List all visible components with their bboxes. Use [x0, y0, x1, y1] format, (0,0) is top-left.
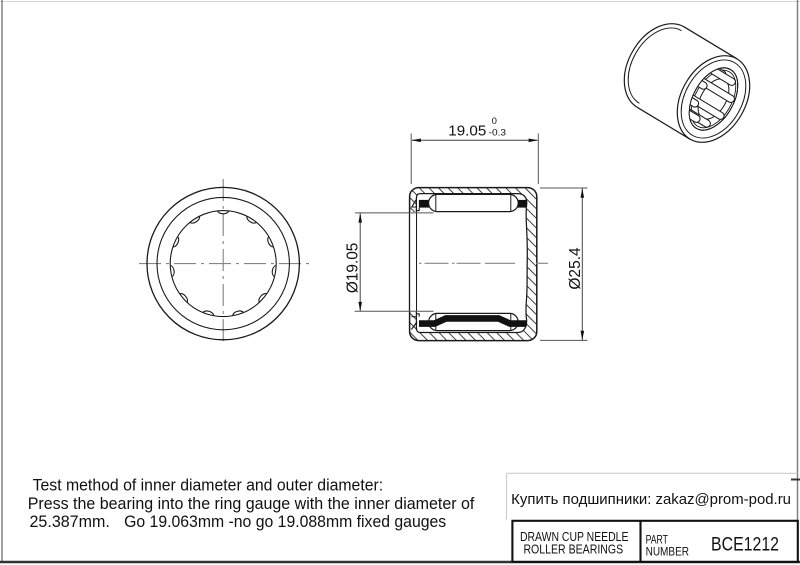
- svg-text:Go 19.063mm -no go 19.088mm fi: Go 19.063mm -no go 19.088mm fixed gauges: [124, 513, 446, 531]
- svg-text:ROLLER BEARINGS: ROLLER BEARINGS: [523, 541, 623, 556]
- svg-text:0: 0: [492, 116, 497, 127]
- svg-text:19.05: 19.05: [448, 124, 486, 140]
- svg-text:Test method of inner diameter: Test method of inner diameter and outer …: [33, 476, 384, 494]
- svg-text:25.387mm.: 25.387mm.: [30, 513, 110, 531]
- svg-text:NUMBER: NUMBER: [646, 546, 689, 558]
- svg-text:Ø25.4: Ø25.4: [567, 247, 584, 289]
- svg-text:BCE1212: BCE1212: [711, 533, 779, 555]
- svg-text:Ø19.05: Ø19.05: [345, 243, 362, 293]
- svg-text:Press the bearing into the rin: Press the bearing into the ring gauge wi…: [28, 495, 475, 513]
- svg-text:PART: PART: [646, 534, 668, 546]
- svg-text:-0.3: -0.3: [489, 128, 506, 139]
- svg-text:Купить подшипники: zakaz@prom-: Купить подшипники: zakaz@prom-pod.ru: [511, 492, 791, 508]
